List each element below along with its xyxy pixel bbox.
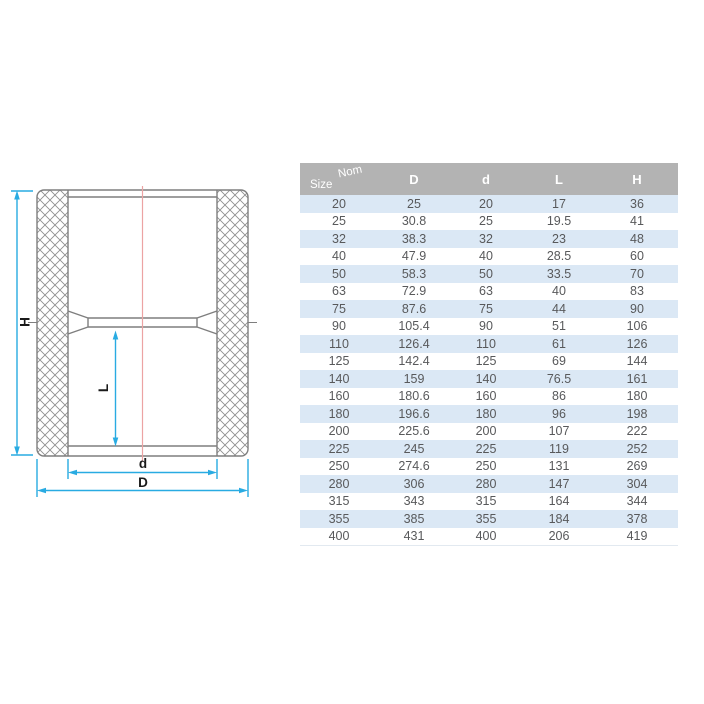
table-cell: 30.8 bbox=[378, 213, 450, 231]
table-cell: 140 bbox=[450, 370, 522, 388]
table-cell: 90 bbox=[300, 318, 378, 336]
table-cell: 28.5 bbox=[522, 248, 596, 266]
table-cell: 90 bbox=[450, 318, 522, 336]
table-cell: 76.5 bbox=[522, 370, 596, 388]
table-cell: 431 bbox=[378, 528, 450, 546]
table-cell: 125 bbox=[300, 353, 378, 371]
table-row: 160180.616086180 bbox=[300, 388, 678, 406]
table-cell: 72.9 bbox=[378, 283, 450, 301]
table-cell: 306 bbox=[378, 475, 450, 493]
table-cell: 180.6 bbox=[378, 388, 450, 406]
table-cell: 41 bbox=[596, 213, 678, 231]
table-cell: 44 bbox=[522, 300, 596, 318]
table-cell: 90 bbox=[596, 300, 678, 318]
table-cell: 126.4 bbox=[378, 335, 450, 353]
table-cell: 144 bbox=[596, 353, 678, 371]
table-cell: 63 bbox=[450, 283, 522, 301]
page: { "diagram": { "type": "pipe-coupling-cr… bbox=[0, 0, 704, 704]
table-cell: 36 bbox=[596, 195, 678, 213]
corner-size-label: Size bbox=[310, 179, 332, 191]
table-cell: 48 bbox=[596, 230, 678, 248]
table-cell: 20 bbox=[450, 195, 522, 213]
table-cell: 20 bbox=[300, 195, 378, 213]
table-row: 7587.6754490 bbox=[300, 300, 678, 318]
table-cell: 50 bbox=[300, 265, 378, 283]
table-cell: 250 bbox=[300, 458, 378, 476]
dim-label-d: d bbox=[139, 456, 147, 471]
table-cell: 344 bbox=[596, 493, 678, 511]
table-cell: 40 bbox=[522, 283, 596, 301]
table-row: 355385355184378 bbox=[300, 510, 678, 528]
table-cell: 50 bbox=[450, 265, 522, 283]
table-cell: 304 bbox=[596, 475, 678, 493]
table-cell: 23 bbox=[522, 230, 596, 248]
column-header-d: d bbox=[450, 163, 522, 195]
table-cell: 355 bbox=[300, 510, 378, 528]
column-header-L: L bbox=[522, 163, 596, 195]
table-cell: 58.3 bbox=[378, 265, 450, 283]
table-row: 200225.6200107222 bbox=[300, 423, 678, 441]
table-cell: 131 bbox=[522, 458, 596, 476]
table-cell: 51 bbox=[522, 318, 596, 336]
table-row: 110126.411061126 bbox=[300, 335, 678, 353]
table-cell: 105.4 bbox=[378, 318, 450, 336]
corner-nom-label: Nom bbox=[337, 164, 363, 181]
table-cell: 25 bbox=[450, 213, 522, 231]
table-cell: 280 bbox=[300, 475, 378, 493]
table-cell: 180 bbox=[450, 405, 522, 423]
table-cell: 315 bbox=[450, 493, 522, 511]
table-cell: 40 bbox=[300, 248, 378, 266]
table-cell: 222 bbox=[596, 423, 678, 441]
table-cell: 164 bbox=[522, 493, 596, 511]
table-cell: 38.3 bbox=[378, 230, 450, 248]
table-cell: 225 bbox=[300, 440, 378, 458]
table-cell: 269 bbox=[596, 458, 678, 476]
table-cell: 400 bbox=[450, 528, 522, 546]
table-cell: 140 bbox=[300, 370, 378, 388]
table-cell: 250 bbox=[450, 458, 522, 476]
table-cell: 385 bbox=[378, 510, 450, 528]
column-header-H: H bbox=[596, 163, 678, 195]
table-cell: 86 bbox=[522, 388, 596, 406]
column-header-D: D bbox=[378, 163, 450, 195]
table-row: 400431400206419 bbox=[300, 528, 678, 546]
table-cell: 315 bbox=[300, 493, 378, 511]
dim-label-H: H bbox=[18, 317, 33, 327]
dim-label-D: D bbox=[138, 475, 148, 490]
table-cell: 60 bbox=[596, 248, 678, 266]
table-cell: 106 bbox=[596, 318, 678, 336]
table-cell: 75 bbox=[300, 300, 378, 318]
table-row: 2530.82519.541 bbox=[300, 213, 678, 231]
table-cell: 119 bbox=[522, 440, 596, 458]
table-cell: 107 bbox=[522, 423, 596, 441]
table-cell: 159 bbox=[378, 370, 450, 388]
coupling-diagram: H L d D bbox=[0, 150, 300, 520]
table-cell: 96 bbox=[522, 405, 596, 423]
table-cell: 280 bbox=[450, 475, 522, 493]
table-row: 225245225119252 bbox=[300, 440, 678, 458]
table-cell: 32 bbox=[300, 230, 378, 248]
table-cell: 400 bbox=[300, 528, 378, 546]
table-row: 3238.3322348 bbox=[300, 230, 678, 248]
table-cell: 274.6 bbox=[378, 458, 450, 476]
dimension-table: Nom Size D d L H 20252017362530.82519.54… bbox=[300, 163, 678, 546]
dim-label-L: L bbox=[96, 384, 111, 392]
table-cell: 252 bbox=[596, 440, 678, 458]
table-cell: 69 bbox=[522, 353, 596, 371]
table-cell: 83 bbox=[596, 283, 678, 301]
table-cell: 206 bbox=[522, 528, 596, 546]
table-cell: 126 bbox=[596, 335, 678, 353]
table-cell: 87.6 bbox=[378, 300, 450, 318]
table-row: 250274.6250131269 bbox=[300, 458, 678, 476]
table-cell: 25 bbox=[378, 195, 450, 213]
table-row: 315343315164344 bbox=[300, 493, 678, 511]
table-cell: 63 bbox=[300, 283, 378, 301]
table-cell: 125 bbox=[450, 353, 522, 371]
table-cell: 75 bbox=[450, 300, 522, 318]
table-cell: 33.5 bbox=[522, 265, 596, 283]
table-row: 90105.49051106 bbox=[300, 318, 678, 336]
table-cell: 198 bbox=[596, 405, 678, 423]
table-cell: 196.6 bbox=[378, 405, 450, 423]
table-cell: 184 bbox=[522, 510, 596, 528]
corner-header-cell: Nom Size bbox=[300, 163, 378, 195]
table-row: 5058.35033.570 bbox=[300, 265, 678, 283]
table-cell: 343 bbox=[378, 493, 450, 511]
table-cell: 160 bbox=[450, 388, 522, 406]
table-cell: 70 bbox=[596, 265, 678, 283]
table-header-row: Nom Size D d L H bbox=[300, 163, 678, 195]
table-cell: 32 bbox=[450, 230, 522, 248]
table-cell: 110 bbox=[300, 335, 378, 353]
table-row: 180196.618096198 bbox=[300, 405, 678, 423]
table-cell: 225.6 bbox=[378, 423, 450, 441]
table-cell: 17 bbox=[522, 195, 596, 213]
table-cell: 245 bbox=[378, 440, 450, 458]
table-cell: 19.5 bbox=[522, 213, 596, 231]
table-row: 280306280147304 bbox=[300, 475, 678, 493]
table-cell: 40 bbox=[450, 248, 522, 266]
table-cell: 378 bbox=[596, 510, 678, 528]
table-cell: 47.9 bbox=[378, 248, 450, 266]
table-cell: 161 bbox=[596, 370, 678, 388]
table-row: 14015914076.5161 bbox=[300, 370, 678, 388]
table-row: 125142.412569144 bbox=[300, 353, 678, 371]
table-cell: 355 bbox=[450, 510, 522, 528]
table-row: 6372.9634083 bbox=[300, 283, 678, 301]
table-cell: 225 bbox=[450, 440, 522, 458]
table-body: 20252017362530.82519.5413238.33223484047… bbox=[300, 195, 678, 545]
table-cell: 180 bbox=[300, 405, 378, 423]
table-cell: 25 bbox=[300, 213, 378, 231]
table-row: 2025201736 bbox=[300, 195, 678, 213]
table-cell: 110 bbox=[450, 335, 522, 353]
table-cell: 147 bbox=[522, 475, 596, 493]
table-cell: 200 bbox=[450, 423, 522, 441]
table-cell: 200 bbox=[300, 423, 378, 441]
table-cell: 419 bbox=[596, 528, 678, 546]
table-cell: 180 bbox=[596, 388, 678, 406]
table-cell: 142.4 bbox=[378, 353, 450, 371]
table-cell: 160 bbox=[300, 388, 378, 406]
table-row: 4047.94028.560 bbox=[300, 248, 678, 266]
table-cell: 61 bbox=[522, 335, 596, 353]
